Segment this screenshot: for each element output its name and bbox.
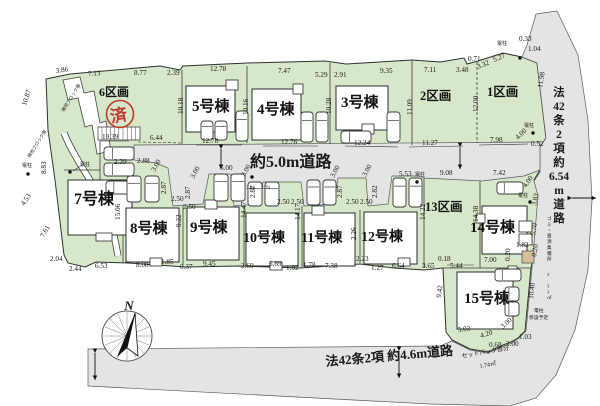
utility-pole-dot (68, 170, 71, 173)
dimension-label: 7.61 (39, 224, 52, 239)
car-icon (495, 269, 521, 281)
dimension-label: 12.76 (281, 138, 298, 146)
car-icon (145, 176, 159, 202)
dimension-label: 2.50 (346, 198, 359, 206)
site-plan-drawing: 6区画 5号棟 4号棟 3号棟 2区画 1区画 7号棟 8号棟 9号棟 10号棟… (0, 0, 600, 406)
lot-label-9: 9号棟 (190, 218, 229, 236)
dimension-label: 7.98 (490, 136, 503, 144)
dimension-label: 7.38 (325, 262, 338, 270)
dimension-label: 2.23 (356, 255, 369, 263)
dimension-label: 2.88 (137, 157, 150, 165)
dimension-label: 9.45 (203, 260, 216, 268)
dimension-label: 0.52 (531, 140, 544, 148)
dimension-label: 8.77 (134, 69, 147, 77)
dimension-label: 15.06 (114, 203, 122, 220)
dimension-label: 0.33 (519, 35, 532, 43)
lot-label-1: 1区画 (487, 85, 518, 99)
utility-pole-label: 電柱 (80, 161, 90, 168)
dimension-label: 2.50 (183, 203, 196, 211)
dimension-label: 5.03 (457, 325, 471, 334)
dimension-label: 7.00 (484, 256, 497, 264)
dimension-label: 10.87 (20, 88, 33, 106)
dimension-label: 3.79 (261, 186, 270, 191)
lot-label-15: 15号棟 (464, 289, 510, 307)
lot-label-4: 4号棟 (257, 100, 296, 118)
dimension-label: 2.82 (371, 185, 379, 198)
car-icon (127, 176, 141, 202)
dimension-label: 10.28 (325, 97, 333, 114)
car-icon (393, 178, 406, 207)
utility-pole-dot (531, 131, 534, 134)
dimension-label: 10.18 (177, 97, 185, 114)
lot-label-2: 2区画 (420, 89, 451, 103)
dimension-label: 5.53 (399, 170, 412, 178)
lot-label-5: 5号棟 (192, 97, 231, 115)
dimension-label: 2.04 (50, 255, 63, 263)
dimension-label: 7.11 (424, 66, 437, 74)
dimension-label: 1.85 (161, 258, 174, 266)
dimension-label: 1.02 (286, 264, 299, 272)
car-icon (214, 174, 228, 201)
dimension-label: 3.65 (422, 262, 435, 270)
compass: N (102, 298, 152, 361)
dimension-label: 12.78 (210, 65, 227, 73)
dimension-label: 4.53 (19, 192, 33, 207)
dimension-label: 2.91 (334, 71, 347, 79)
car-icon (231, 174, 245, 201)
dimension-label: 5.29 (315, 71, 328, 79)
dimension-label: 14.22 (419, 203, 427, 220)
dimension-label: 2.50 (360, 198, 373, 206)
dimension-label: 12.00 (472, 95, 480, 112)
lot-label-10: 10号棟 (243, 229, 286, 246)
dimension-label: 2.87 (336, 185, 344, 198)
utility-pole-label: 電柱 (22, 162, 32, 169)
dimension-label: 2.50 (277, 198, 290, 206)
dimension-label: 6.89 (269, 260, 282, 268)
utility-pole-label: 電柱 (415, 171, 425, 178)
dimension-label: 8.83 (40, 161, 48, 174)
utility-pole-dot (250, 175, 253, 178)
dimension-label: 7.42 (493, 169, 506, 177)
dimension-label: 2.39 (114, 158, 127, 166)
utility-pole-label: 電柱 (518, 192, 528, 199)
dimension-label: 2.44 (69, 265, 82, 273)
dimension-label: 6.00 (220, 164, 233, 172)
car-icon (316, 112, 328, 142)
lot-label-6: 6区画 (99, 85, 129, 99)
dimension-label: 14.17 (294, 203, 302, 220)
lot-label-12: 12号棟 (361, 228, 404, 245)
lot-label-13: 13区画 (425, 200, 463, 214)
dimension-label: 3.44 (246, 186, 255, 191)
lot-label-7: 7号棟 (74, 189, 115, 208)
wall-note: 隣地ブロック塀 (26, 128, 49, 159)
dimension-label: 19.39 (102, 133, 119, 141)
dimension-label: 2.26 (350, 227, 358, 240)
dimension-label: 1.27 (371, 264, 384, 272)
car-icon (497, 182, 523, 194)
lot-label-8: 8号棟 (130, 219, 169, 237)
dimension-label: 9.08 (440, 169, 453, 177)
dimension-label: 5.44 (450, 262, 463, 270)
dimension-label: 11.09 (406, 99, 414, 115)
car-icon (387, 112, 400, 142)
dimension-label: 3.86 (55, 65, 69, 75)
dimension-label: 1.04 (528, 45, 541, 53)
dimension-label: 10.16 (242, 98, 250, 115)
dimension-label: 11.27 (422, 139, 438, 147)
lot-label-11: 11号棟 (301, 229, 343, 246)
dimension-label: 14.38 (472, 205, 480, 222)
car-icon (323, 180, 336, 205)
lot-label-3: 3号棟 (341, 93, 380, 111)
dimension-label: 1.03 (519, 333, 532, 341)
dimension-label: 2.87 (160, 181, 168, 194)
utility-pole-dot (518, 56, 521, 59)
dimension-label: 6.64 (392, 262, 405, 270)
dimension-label: 6.44 (150, 134, 163, 142)
car-icon (307, 180, 320, 205)
utility-pole-label: 電柱 (497, 40, 507, 47)
dimension-label: 9.22 (175, 214, 183, 227)
dimension-label: 7.13 (88, 69, 102, 78)
dimension-label: 2.39 (167, 69, 180, 77)
pole-relocation-note: 電柱 (534, 307, 544, 314)
dimension-label: 6.53 (95, 262, 108, 270)
dimension-label: 12.78 (202, 137, 219, 145)
pole-relocation-note: 移設予定 (529, 314, 548, 321)
compass-n-label: N (123, 298, 134, 313)
dimension-label: 1.82 (516, 241, 529, 249)
dimension-label: 9.35 (380, 67, 393, 75)
dimension-label: 9.42 (435, 284, 444, 298)
dimension-label: 14.47 (240, 201, 248, 218)
utility-pole-dot (26, 172, 29, 175)
road-main-label: 約5.0m道路 (250, 152, 332, 171)
site-plan-page: 6区画 5号棟 4号棟 3号棟 2区画 1区画 7号棟 8号棟 9号棟 10号棟… (0, 0, 600, 406)
dimension-label: 1.78 (303, 261, 316, 269)
dimension-label: 2.69 (241, 262, 254, 270)
dimension-label: 2.87 (184, 186, 192, 199)
dimension-label: 2.50 (171, 195, 184, 203)
dimension-label: 3.48 (456, 66, 469, 74)
garbage-area-note: ゴミ・資源集積所 (547, 215, 552, 263)
dimension-label: 0.37 (180, 263, 193, 271)
dimension-label: 7.47 (278, 67, 291, 75)
car-icon (301, 112, 313, 142)
utility-pole-dot (415, 180, 418, 183)
dimension-label: 8.08 (136, 261, 149, 269)
utility-pole-label: 電柱 (524, 122, 534, 129)
dimension-label: 12.24 (354, 139, 371, 147)
dimension-label: 0.20 (504, 248, 512, 261)
